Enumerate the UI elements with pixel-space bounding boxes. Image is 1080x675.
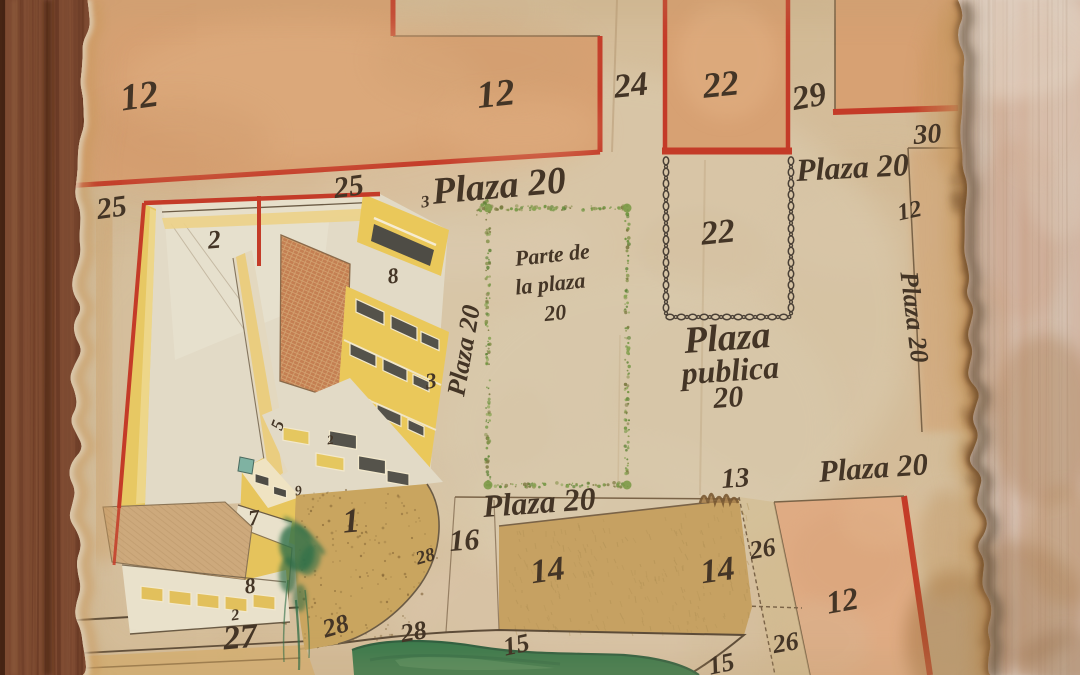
svg-text:12: 12 (823, 580, 861, 621)
svg-text:20: 20 (542, 299, 567, 326)
svg-text:14: 14 (698, 550, 737, 591)
svg-text:24: 24 (611, 65, 650, 105)
svg-text:Plaza 20: Plaza 20 (794, 146, 910, 188)
svg-text:25: 25 (331, 168, 366, 205)
svg-text:20: 20 (711, 380, 744, 415)
svg-text:27: 27 (221, 617, 261, 657)
svg-text:25: 25 (94, 189, 129, 226)
svg-text:13: 13 (720, 462, 750, 495)
svg-text:26: 26 (769, 626, 801, 659)
svg-text:26: 26 (746, 532, 778, 565)
svg-text:22: 22 (700, 62, 741, 106)
svg-text:12: 12 (475, 71, 517, 117)
svg-text:29: 29 (788, 75, 829, 118)
svg-text:2: 2 (206, 225, 222, 255)
svg-text:14: 14 (528, 550, 567, 591)
svg-text:28: 28 (397, 615, 429, 648)
svg-text:1: 1 (341, 502, 361, 540)
svg-text:12: 12 (118, 73, 161, 120)
svg-text:22: 22 (698, 212, 737, 252)
svg-text:16: 16 (448, 523, 480, 558)
svg-text:30: 30 (911, 118, 942, 151)
